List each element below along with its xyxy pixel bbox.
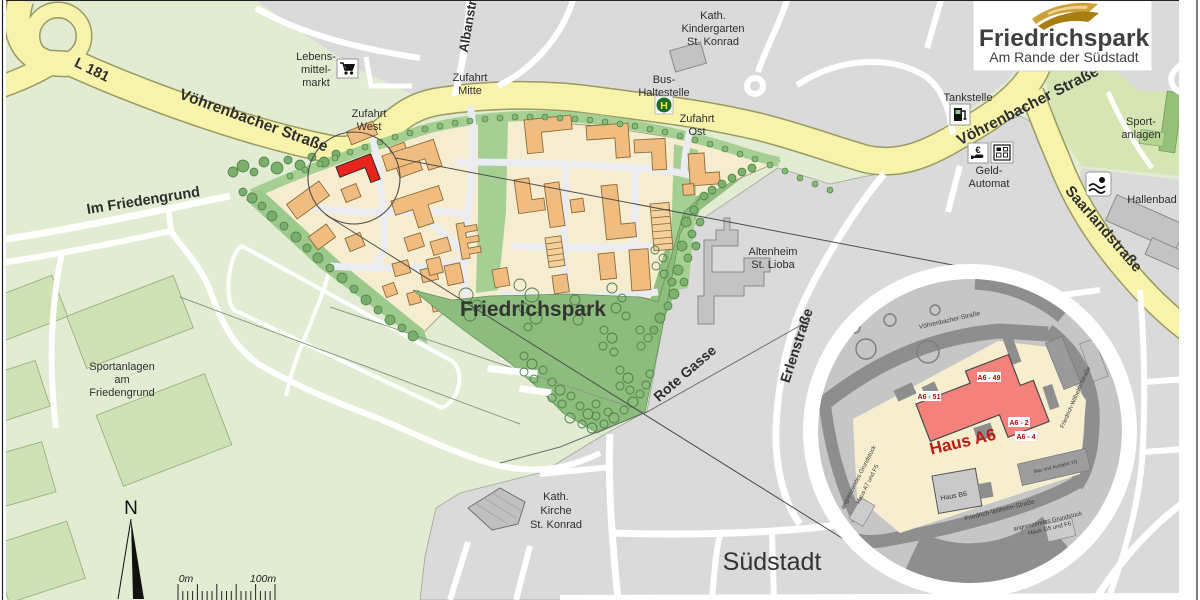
svg-text:Zufahrt: Zufahrt [352,108,387,120]
svg-text:100m: 100m [250,573,277,585]
svg-text:Automat: Automat [969,178,1010,190]
svg-text:Lebens-: Lebens- [296,51,336,63]
svg-text:Friedrichspark: Friedrichspark [979,25,1150,52]
svg-text:Sportanlagen: Sportanlagen [89,361,154,373]
svg-text:A6 - 2: A6 - 2 [1009,420,1028,427]
svg-text:St. Konrad: St. Konrad [687,36,739,48]
svg-text:Kindergarten: Kindergarten [682,23,745,35]
svg-text:0m: 0m [179,573,194,585]
svg-text:Friedrichspark: Friedrichspark [460,298,606,321]
svg-text:A6 - 51: A6 - 51 [918,394,941,401]
svg-text:markt: markt [302,77,330,89]
svg-text:Kath.: Kath. [543,491,569,503]
svg-text:St. Lioba: St. Lioba [751,259,795,271]
svg-text:N: N [124,498,138,519]
svg-text:Hallenbad: Hallenbad [1127,194,1177,206]
svg-text:Am Rande der Südstadt: Am Rande der Südstadt [989,49,1139,65]
svg-text:Zufahrt: Zufahrt [680,113,715,125]
svg-text:Bus-: Bus- [653,74,676,86]
svg-text:Kath.: Kath. [700,10,726,22]
svg-text:A6 - 49: A6 - 49 [978,375,1001,382]
svg-text:Südstadt: Südstadt [723,548,822,576]
svg-text:H: H [660,100,668,112]
svg-text:West: West [357,121,382,133]
svg-text:Sport-: Sport- [1126,116,1156,128]
svg-text:Geld-: Geld- [976,165,1003,177]
svg-text:A6 - 4: A6 - 4 [1016,434,1035,441]
svg-text:mittel-: mittel- [301,64,331,76]
svg-text:Zufahrt: Zufahrt [453,72,488,84]
svg-text:St. Konrad: St. Konrad [530,519,582,531]
svg-text:anlagen: anlagen [1121,129,1160,141]
svg-text:Friedengrund: Friedengrund [89,387,154,399]
svg-text:am: am [114,374,129,386]
svg-text:Ost: Ost [688,126,705,138]
svg-text:Tankstelle: Tankstelle [944,92,993,104]
svg-text:Kirche: Kirche [540,505,571,517]
svg-text:€: € [975,145,981,156]
svg-text:Altenheim: Altenheim [749,246,798,258]
svg-text:Mitte: Mitte [458,85,482,97]
